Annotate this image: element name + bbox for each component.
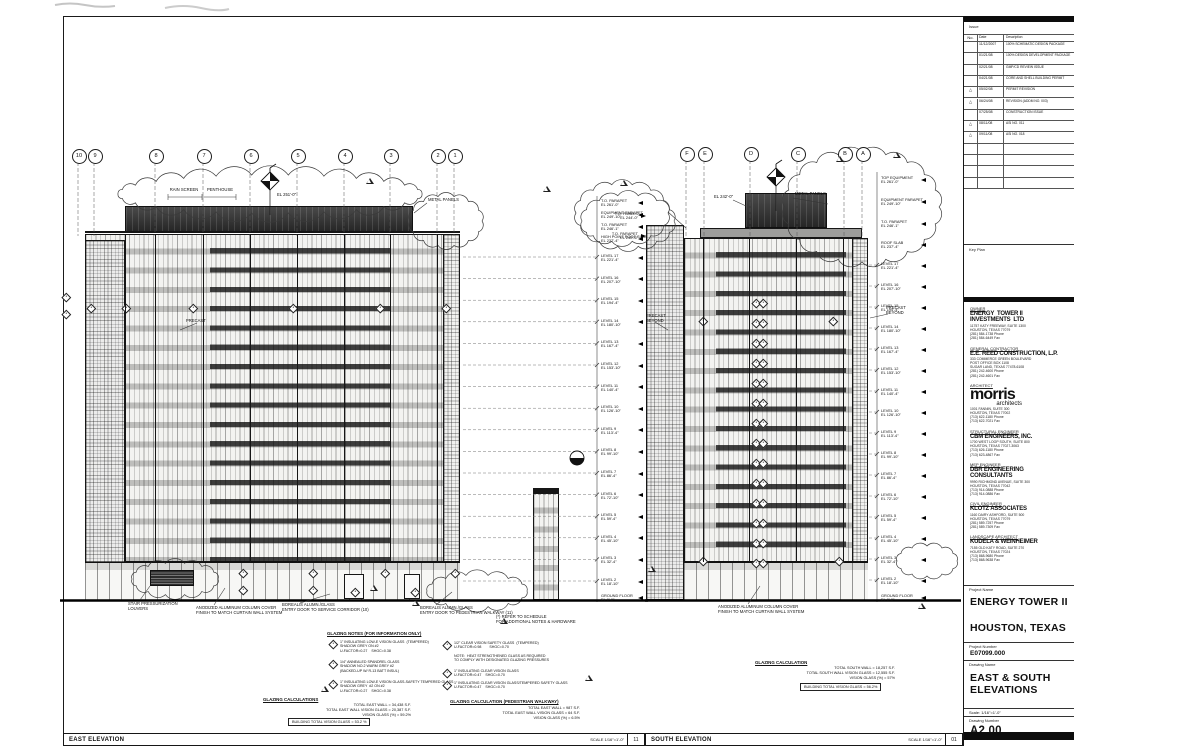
level-flag-icon bbox=[638, 225, 643, 229]
level-marker: LEVEL 14 EL 180'-10" bbox=[881, 325, 901, 333]
grid-bubble-3: 3 bbox=[384, 149, 399, 164]
glazing-legend-item: 1" INSULATING CLEAR VISION GLASS/TEMPERE… bbox=[454, 681, 568, 690]
revision-row: 02/21/08GMP/CD REVIEW ISSUE bbox=[964, 65, 1074, 76]
grid-bubble-C: C bbox=[791, 147, 806, 162]
revision-delta-icon bbox=[836, 156, 844, 162]
grid-bubble-2: 2 bbox=[431, 149, 446, 164]
glazing-calc-walkway-header: GLAZING CALCULATION (PEDESTRIAN WALKWAY) bbox=[450, 699, 559, 704]
grid-bubble-9: 9 bbox=[88, 149, 103, 164]
level-flag-icon bbox=[921, 516, 926, 520]
revision-row: 07/25/08CONSTRUCTION ISSUE bbox=[964, 110, 1074, 121]
project-city: HOUSTON, TEXAS bbox=[970, 622, 1066, 634]
glazing-calc-east-total: BUILDING TOTAL VISION GLASS = 53.2 % bbox=[288, 718, 370, 726]
level-flag-icon bbox=[638, 364, 643, 368]
level-marker: LEVEL 2 EL 18'-10" bbox=[601, 578, 619, 586]
level-flag-icon bbox=[638, 580, 643, 584]
glazing-calc-walkway: TOTAL EAST WALL = 987 S.F. TOTAL EAST WA… bbox=[450, 706, 580, 721]
key-plan-label: Key Plan bbox=[969, 247, 985, 252]
ground-level-marker: GROUND FLOOR EL 0'-0" bbox=[881, 594, 913, 602]
scale-value: 1/16"=1'-0" bbox=[981, 710, 1001, 715]
level-flag-icon bbox=[638, 299, 643, 303]
revision-row bbox=[964, 166, 1074, 177]
level-flag-icon bbox=[921, 285, 926, 289]
south-ground-note: ANODIZED ALUMINUM COLUMN COVER FINISH TO… bbox=[718, 605, 804, 615]
glazing-calc-south-header: GLAZING CALCULATION bbox=[755, 660, 807, 665]
level-flag-icon bbox=[921, 596, 926, 600]
level-marker: LEVEL 5 EL 59'-4" bbox=[881, 514, 897, 522]
project-name-label: Project Name bbox=[969, 587, 993, 592]
grid-bubble-E: E bbox=[698, 147, 713, 162]
level-flag-icon bbox=[638, 407, 643, 411]
grid-bubble-F: F bbox=[680, 147, 695, 162]
south-elevation-title: SOUTH ELEVATION bbox=[646, 737, 712, 743]
revision-row: △05/02/08PERMIT REVISION bbox=[964, 87, 1074, 98]
column-grid-line bbox=[297, 234, 298, 562]
drawing-number-label: Drawing Number bbox=[969, 718, 999, 723]
east-walkway-cap bbox=[533, 488, 559, 493]
level-marker: LEVEL 11 EL 140'-4" bbox=[601, 384, 619, 392]
column-grid-line bbox=[796, 238, 797, 562]
glazing-legend-item: NOTE: HEAT STRENGTHENED GLASS AS REQUIRE… bbox=[454, 654, 549, 663]
east-ground-note: (*) REFER TO SCHEDULE FOR ADDITIONAL NOT… bbox=[496, 615, 576, 625]
grid-bubble-10: 10 bbox=[72, 149, 87, 164]
south-penthouse bbox=[745, 193, 827, 228]
east-stair-louvers bbox=[150, 570, 194, 586]
issue-label: Issue bbox=[969, 24, 979, 29]
revision-row: 01/21/08100% DESIGN DEVELOPMENT PACKAGE bbox=[964, 53, 1074, 64]
level-marker: LEVEL 16 EL 207'-10" bbox=[601, 276, 621, 284]
east-precast-wing bbox=[85, 240, 125, 600]
level-marker: LEVEL 10 EL 126'-10" bbox=[601, 405, 621, 413]
grid-bubble-4: 4 bbox=[338, 149, 353, 164]
elevation-tag: EL 251'-0" bbox=[277, 193, 296, 198]
column-grid-line bbox=[125, 234, 126, 562]
column-grid-line bbox=[155, 234, 156, 562]
level-marker: LEVEL 3 EL 32'-4" bbox=[601, 556, 617, 564]
level-flag-icon bbox=[638, 558, 643, 562]
column-grid-line bbox=[390, 234, 391, 562]
revision-row bbox=[964, 144, 1074, 155]
revision-delta-icon bbox=[585, 675, 593, 681]
level-flag-icon bbox=[921, 369, 926, 373]
drawing-name-line2: ELEVATIONS bbox=[970, 684, 1038, 696]
level-flag-icon bbox=[638, 536, 643, 540]
level-flag-icon bbox=[638, 201, 643, 205]
roof-level-marker: ROOF SLAB EL 237'-4" bbox=[881, 241, 903, 249]
glazing-legend-item: 1" INSULATING LOW-E VISION GLASS (TEMPER… bbox=[340, 640, 429, 653]
roof-level-marker: T.O. PARAPET EL 261'-0" bbox=[601, 199, 627, 207]
grid-bubble-7: 7 bbox=[197, 149, 212, 164]
level-flag-icon bbox=[638, 493, 643, 497]
level-marker: LEVEL 4 EL 45'-10" bbox=[601, 535, 619, 543]
level-marker: LEVEL 15 EL 194'-4" bbox=[601, 297, 619, 305]
glazing-legend-item: 1" INSULATING CLEAR VISION GLASS U-FACTO… bbox=[454, 669, 519, 678]
south-right-strip bbox=[852, 238, 868, 562]
glazing-legend-item: 1/2" CLEAR VISION SAFETY GLASS (TEMPERED… bbox=[454, 641, 539, 650]
level-marker: LEVEL 8 EL 99'-10" bbox=[881, 451, 899, 459]
level-marker: LEVEL 4 EL 45'-10" bbox=[881, 535, 899, 543]
glazing-legend-item: 1" INSULATING LOW-E VISION GLASS-SAFETY … bbox=[340, 680, 453, 693]
level-marker: LEVEL 7 EL 86'-4" bbox=[601, 470, 617, 478]
column-grid-line bbox=[203, 234, 204, 562]
level-flag-icon bbox=[921, 243, 926, 247]
elevation-tag: EL 242'-0" bbox=[714, 195, 733, 200]
level-marker: LEVEL 12 EL 153'-10" bbox=[881, 367, 901, 375]
revision-delta-icon bbox=[893, 152, 901, 158]
team-entry: STRUCTURAL ENGINEERCBM ENGINEERS, INC.17… bbox=[970, 429, 1070, 457]
drawing-name-label: Drawing Name bbox=[969, 662, 995, 667]
level-flag-icon bbox=[638, 256, 643, 260]
level-flag-icon bbox=[921, 348, 926, 352]
glazing-legend-item: 1/4" ANNEALED SPANDREL GLASS SHADOW NO.2… bbox=[340, 660, 399, 673]
south-cap-band bbox=[700, 228, 862, 238]
glazing-calc-south-total: BUILDING TOTAL VISION GLASS = 56.2% bbox=[800, 683, 881, 691]
level-flag-icon bbox=[921, 178, 926, 182]
level-marker: LEVEL 13 EL 167'-4" bbox=[881, 346, 899, 354]
east-corner-strip bbox=[443, 234, 460, 562]
level-flag-icon bbox=[638, 428, 643, 432]
level-flag-icon bbox=[638, 450, 643, 454]
east-dark-spandrels bbox=[210, 234, 390, 562]
team-entry: GENERAL CONTRACTORE.E. REED CONSTRUCTION… bbox=[970, 346, 1070, 378]
team-entry: ARCHITECTmorrisarchitects1001 FANNIN, SU… bbox=[970, 383, 1070, 424]
level-flag-icon bbox=[638, 320, 643, 324]
metal-panels-tag: METAL PANELS bbox=[795, 192, 826, 197]
grid-bubble-6: 6 bbox=[244, 149, 259, 164]
revision-row: 04/21/08CORE AND SHELL BUILDING PERMIT bbox=[964, 76, 1074, 87]
project-name: ENERGY TOWER II bbox=[970, 596, 1068, 608]
south-detail-number: 01 bbox=[945, 734, 962, 745]
east-detail-number: 11 bbox=[627, 734, 644, 745]
column-grid-line bbox=[749, 238, 750, 562]
level-flag-icon bbox=[638, 596, 643, 600]
east-ground-note: BOREALIS ALUMN./GLASS ENTRY DOOR TO SERV… bbox=[282, 603, 369, 613]
title-block: Issue No.DateDescription11/12/2007100% S… bbox=[963, 16, 1073, 746]
level-flag-icon bbox=[921, 390, 926, 394]
metal-panels-tag: METAL PANELS bbox=[428, 198, 459, 203]
level-marker: T.O. PANELS EL 244'-0" bbox=[592, 212, 638, 220]
level-flag-icon bbox=[638, 515, 643, 519]
level-marker: LEVEL 9 EL 113'-4" bbox=[881, 430, 898, 438]
level-flag-icon bbox=[921, 327, 926, 331]
level-marker: LEVEL 17 EL 221'-4" bbox=[881, 262, 899, 270]
level-marker: LEVEL 12 EL 153'-10" bbox=[601, 362, 621, 370]
title-block-bottom-bar bbox=[964, 732, 1074, 740]
glazing-calc-south: TOTAL SOUTH WALL = 18,257 S.F. TOTAL SOU… bbox=[755, 666, 895, 681]
revision-delta-icon bbox=[321, 686, 329, 692]
glazing-legend-header: GLAZING NOTES (FOR INFORMATION ONLY) bbox=[327, 631, 421, 636]
level-flag-icon bbox=[921, 579, 926, 583]
level-flag-icon bbox=[921, 306, 926, 310]
level-flag-icon bbox=[641, 234, 646, 238]
level-flag-icon bbox=[921, 222, 926, 226]
level-flag-icon bbox=[641, 214, 646, 218]
revision-row: △08/11/08ASI NO. 011 bbox=[964, 121, 1074, 132]
grid-bubble-8: 8 bbox=[149, 149, 164, 164]
east-penthouse-screen bbox=[125, 206, 413, 232]
east-ground-note: ANODIZED ALUMINUM COLUMN COVER FINISH TO… bbox=[196, 606, 282, 616]
title-block-top-bar bbox=[964, 16, 1074, 22]
east-scale-note: SCALE 1/16"=1'-0" bbox=[590, 737, 627, 742]
level-flag-icon bbox=[921, 411, 926, 415]
level-marker: LEVEL 16 EL 207'-10" bbox=[881, 283, 901, 291]
level-marker: LEVEL 6 EL 72'-10" bbox=[601, 492, 619, 500]
drawing-sheet: ★7 Jul 08 10987654321FEDCBAT.O. PARAPET … bbox=[0, 0, 1200, 754]
level-marker: LEVEL 3 EL 32'-4" bbox=[881, 556, 897, 564]
roof-level-marker: EQUIPMENT PARAPET EL 249'-10" bbox=[881, 198, 923, 206]
level-marker: LEVEL 8 EL 99'-10" bbox=[601, 448, 619, 456]
level-flag-icon bbox=[638, 342, 643, 346]
grid-bubble-1: 1 bbox=[448, 149, 463, 164]
glazing-calc-east-header: GLAZING CALCULATIONS bbox=[263, 697, 318, 702]
column-grid-line bbox=[344, 234, 345, 562]
east-ground-note: STAIR PRESSURIZATION LOUVERS bbox=[128, 602, 178, 612]
south-title-bar: SOUTH ELEVATION SCALE 1/16"=1'-0" 01 bbox=[645, 733, 963, 746]
scale-label: Scale: bbox=[969, 710, 980, 715]
level-flag-icon bbox=[921, 474, 926, 478]
penthouse-tag: PENTHOUSE bbox=[207, 188, 233, 193]
project-number-label: Project Number bbox=[969, 644, 997, 649]
revision-row: △06/24/08REVISION (ADDM NO. 003) bbox=[964, 99, 1074, 110]
level-flag-icon bbox=[921, 264, 926, 268]
revision-row: △09/11/08ASI NO. 018 bbox=[964, 132, 1074, 143]
level-marker: LEVEL 5 EL 59'-4" bbox=[601, 513, 617, 521]
level-marker: T.O. PARAPET EL 240'-6" bbox=[592, 232, 638, 240]
revision-row bbox=[964, 178, 1074, 189]
precast-tag: PRECAST bbox=[186, 319, 206, 324]
east-title-bar: EAST ELEVATION SCALE 1/16"=1'-0" 11 bbox=[63, 733, 645, 746]
level-flag-icon bbox=[921, 200, 926, 204]
revision-delta-icon bbox=[366, 178, 374, 184]
level-marker: LEVEL 13 EL 167'-4" bbox=[601, 340, 619, 348]
east-walkway-tower bbox=[533, 493, 559, 600]
roof-level-marker: TOP EQUIPMENT EL 261'-0" bbox=[881, 176, 913, 184]
revision-delta-icon bbox=[370, 585, 378, 591]
revision-delta-icon bbox=[543, 186, 551, 192]
level-marker: LEVEL 14 EL 180'-10" bbox=[601, 319, 621, 327]
revision-row bbox=[964, 155, 1074, 166]
revision-delta-icon bbox=[412, 600, 420, 606]
east-elevation-title: EAST ELEVATION bbox=[64, 737, 124, 743]
level-marker: LEVEL 11 EL 140'-4" bbox=[881, 388, 899, 396]
precast-tag: PRECAST BEYOND bbox=[886, 306, 906, 316]
glazing-calc-east: TOTAL EAST WALL = 34,438 S.F. TOTAL EAST… bbox=[263, 703, 411, 718]
ground-level-marker: GROUND FLOOR EL 0'-0" bbox=[601, 594, 633, 602]
drawing-name-line1: EAST & SOUTH bbox=[970, 672, 1051, 684]
revision-delta-icon bbox=[918, 603, 926, 609]
revision-row: 11/12/2007100% SCHEMATIC DESIGN PACKAGE bbox=[964, 42, 1074, 53]
revision-delta-icon bbox=[648, 566, 656, 572]
column-grid-line bbox=[437, 234, 438, 562]
project-team: OWNERENERGY TOWER II INVESTMENTS LTD1175… bbox=[970, 306, 1070, 567]
roof-level-marker: T.O. PARAPET EL 246'-1" bbox=[601, 223, 627, 231]
title-block-divider-bar bbox=[964, 297, 1074, 302]
revision-header: No.DateDescription bbox=[964, 34, 1074, 42]
column-grid-line bbox=[250, 234, 251, 562]
east-entry-door-walkway bbox=[404, 574, 420, 599]
revision-delta-icon bbox=[620, 180, 628, 186]
grid-bubble-D: D bbox=[744, 147, 759, 162]
team-entry: CIVIL ENGINEERKLOTZ ASSOCIATES1160 DAIRY… bbox=[970, 501, 1070, 529]
level-flag-icon bbox=[638, 385, 643, 389]
level-flag-icon bbox=[921, 432, 926, 436]
level-marker: LEVEL 2 EL 18'-10" bbox=[881, 577, 899, 585]
level-flag-icon bbox=[638, 472, 643, 476]
grid-bubble-A: A bbox=[856, 147, 871, 162]
level-flag-icon bbox=[921, 537, 926, 541]
project-number: E07099.000 bbox=[970, 650, 1005, 657]
south-scale-note: SCALE 1/16"=1'-0" bbox=[908, 737, 945, 742]
column-grid-line bbox=[703, 238, 704, 562]
south-ground-storefront bbox=[684, 562, 868, 600]
level-flag-icon bbox=[921, 558, 926, 562]
level-marker: LEVEL 17 EL 221'-4" bbox=[601, 254, 619, 262]
rain-screen-tag: RAIN SCREEN bbox=[170, 188, 199, 193]
level-marker: LEVEL 6 EL 72'-10" bbox=[881, 493, 899, 501]
level-marker: LEVEL 9 EL 113'-4" bbox=[601, 427, 618, 435]
roof-level-marker: T.O. PARAPET EL 246'-1" bbox=[881, 220, 907, 228]
team-entry: OWNERENERGY TOWER II INVESTMENTS LTD1175… bbox=[970, 306, 1070, 341]
level-marker: LEVEL 7 EL 86'-4" bbox=[881, 472, 897, 480]
south-annex bbox=[646, 225, 684, 600]
level-flag-icon bbox=[921, 453, 926, 457]
precast-tag: PRECAST BEYOND bbox=[646, 314, 666, 324]
south-dark-spandrels bbox=[716, 238, 846, 562]
column-grid-line bbox=[843, 238, 844, 562]
team-entry: MEP ENGINEERDBR ENGINEERING CONSULTANTS9… bbox=[970, 462, 1070, 497]
team-entry: LANDSCAPE ARCHITECTKUDELA & WEINHEIMER71… bbox=[970, 534, 1070, 562]
level-flag-icon bbox=[638, 277, 643, 281]
level-flag-icon bbox=[921, 495, 926, 499]
level-marker: LEVEL 10 EL 126'-10" bbox=[881, 409, 901, 417]
grid-bubble-5: 5 bbox=[291, 149, 306, 164]
